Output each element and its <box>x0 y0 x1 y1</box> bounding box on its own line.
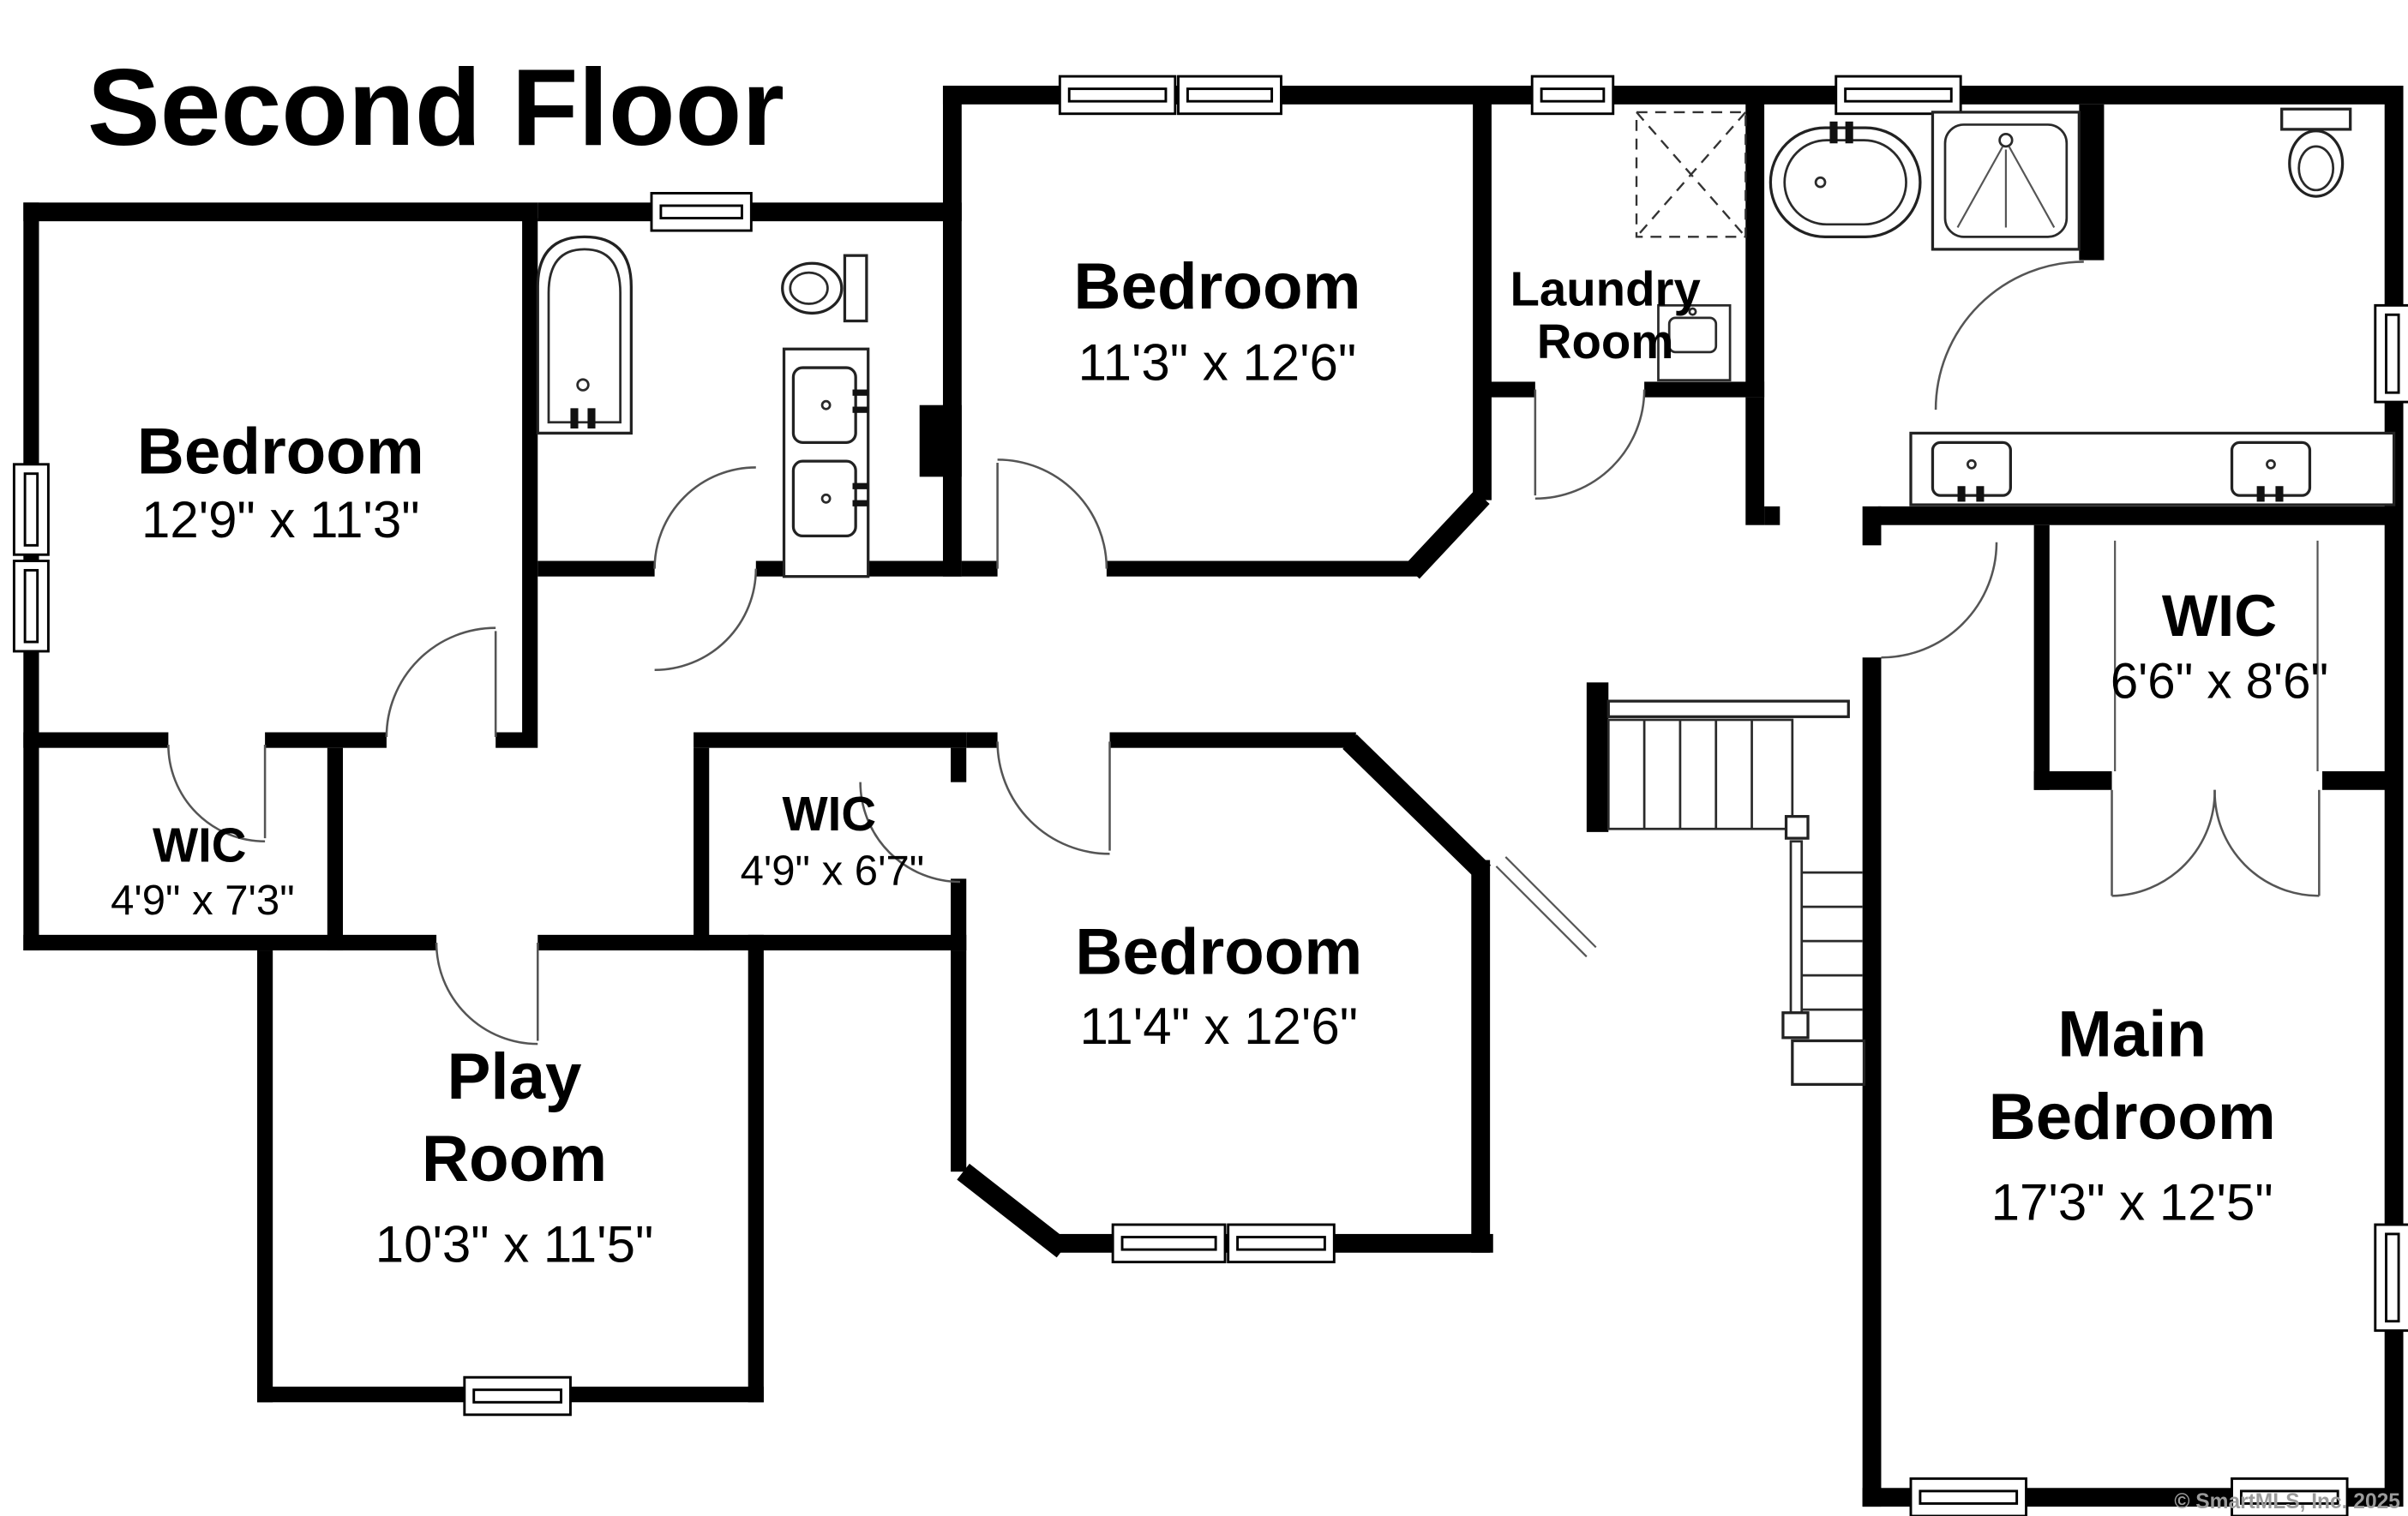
room-dims: 11'3" x 12'6" <box>1078 334 1357 392</box>
page-title: Second Floor <box>87 46 784 168</box>
window <box>1836 76 1961 114</box>
room-label-laundry: Laundry Room <box>1510 261 1701 369</box>
door-arc <box>1881 542 1997 658</box>
floor-plan-drawing: Second Floor Bedroom 12'9" x 11'3" Bedro… <box>0 0 2408 1516</box>
vanity-double-sink-icon <box>784 349 868 576</box>
door-arc <box>655 569 756 670</box>
room-dims: 17'3" x 12'5" <box>1991 1174 2273 1231</box>
room-label-bedroom-mid: Bedroom 11'4" x 12'6" <box>1075 915 1362 1055</box>
shower-icon <box>1932 112 2079 249</box>
room-label-wic-left: WIC 4'9" x 7'3" <box>111 818 295 924</box>
toilet-icon <box>783 255 867 321</box>
double-door-right <box>2215 790 2320 896</box>
floor-plan-page: Second Floor Bedroom 12'9" x 11'3" Bedro… <box>0 0 2408 1516</box>
room-name-line2: Room <box>422 1123 607 1195</box>
window <box>1060 76 1175 114</box>
room-dims: 4'9" x 6'7" <box>741 848 925 895</box>
room-label-main-bedroom: Main Bedroom 17'3" x 12'5" <box>1989 998 2276 1231</box>
door-arc <box>1936 261 2084 410</box>
room-name: WIC <box>153 818 247 872</box>
room-label-bedroom-left: Bedroom 12'9" x 11'3" <box>137 416 424 549</box>
double-door-left <box>2112 790 2215 896</box>
window <box>1532 76 1613 114</box>
room-name-line1: Main <box>2057 998 2207 1071</box>
window <box>1911 1478 2027 1516</box>
window <box>1228 1225 1335 1262</box>
room-label-bedroom-top: Bedroom 11'3" x 12'6" <box>1073 250 1360 392</box>
room-name-line2: Room <box>1537 315 1674 369</box>
room-dims: 12'9" x 11'3" <box>141 491 420 548</box>
washer-dryer-icon <box>1636 112 1745 237</box>
room-name: Bedroom <box>1075 915 1362 988</box>
door-arc <box>1535 390 1644 499</box>
window <box>465 1377 571 1415</box>
toilet-icon <box>2282 109 2351 196</box>
door-arc <box>655 467 756 568</box>
watermark: © SmartMLS, Inc. 2025 <box>2174 1490 2399 1513</box>
room-dims: 11'4" x 12'6" <box>1080 998 1359 1055</box>
stairs <box>1496 701 1864 1084</box>
vanity-double-sink-icon <box>1911 433 2394 505</box>
window <box>2375 1225 2408 1331</box>
door-arc <box>998 459 1107 568</box>
room-name: Bedroom <box>137 416 424 488</box>
bathtub-icon <box>537 237 631 433</box>
door-arc <box>436 943 537 1044</box>
room-dims: 6'6" x 8'6" <box>2111 654 2328 710</box>
window <box>1179 76 1282 114</box>
window <box>14 561 48 651</box>
window <box>2375 305 2408 402</box>
room-name: WIC <box>2162 582 2277 649</box>
freestanding-tub-icon <box>1770 122 1920 237</box>
window <box>14 464 48 554</box>
window <box>1113 1225 1225 1262</box>
door-arc <box>387 628 495 737</box>
room-dims: 10'3" x 11'5" <box>375 1216 654 1273</box>
stair-railing <box>1496 857 1595 956</box>
room-dims: 4'9" x 7'3" <box>111 878 295 924</box>
room-name-line2: Bedroom <box>1989 1081 2276 1153</box>
room-label-play-room: Play Room 10'3" x 11'5" <box>375 1040 654 1273</box>
room-name-line1: Laundry <box>1510 261 1701 315</box>
room-name-line1: Play <box>447 1040 582 1113</box>
room-name: Bedroom <box>1073 250 1360 323</box>
door-arc <box>998 741 1110 854</box>
window <box>652 193 751 231</box>
room-label-wic-main: WIC 6'6" x 8'6" <box>2111 582 2328 710</box>
room-name: WIC <box>782 787 876 841</box>
room-label-wic-mid: WIC 4'9" x 6'7" <box>741 787 925 895</box>
